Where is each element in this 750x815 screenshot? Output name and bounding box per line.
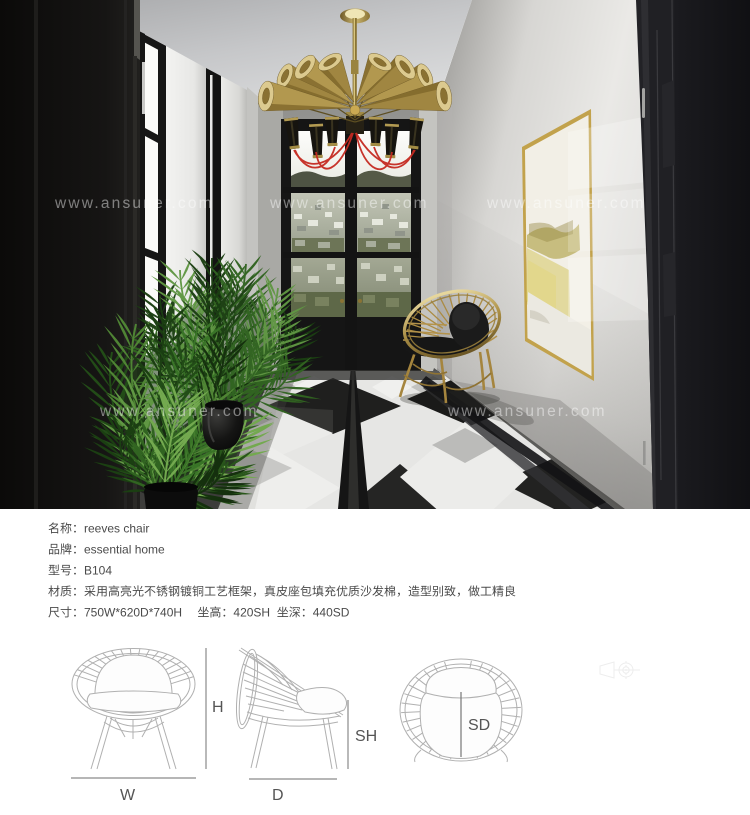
svg-text:H: H <box>212 699 224 716</box>
svg-text:440SD: 440SD <box>313 606 350 620</box>
svg-text:420SH: 420SH <box>233 606 276 620</box>
svg-text:www.ansuner.com: www.ansuner.com <box>99 403 259 420</box>
svg-text:reeves chair: reeves chair <box>84 522 149 536</box>
svg-text:W: W <box>120 787 136 804</box>
svg-text:D: D <box>272 787 284 804</box>
svg-text:B104: B104 <box>84 564 112 578</box>
svg-text:www.ansuner.com: www.ansuner.com <box>486 195 646 212</box>
svg-text:750W*620D*740H: 750W*620D*740H <box>84 606 182 620</box>
svg-text:SD: SD <box>468 717 490 734</box>
svg-text:essential home: essential home <box>84 543 165 557</box>
svg-text:SH: SH <box>355 728 377 745</box>
svg-text:www.ansuner.com: www.ansuner.com <box>269 195 429 212</box>
svg-text:www.ansuner.com: www.ansuner.com <box>447 403 607 420</box>
svg-text:www.ansuner.com: www.ansuner.com <box>54 195 214 212</box>
